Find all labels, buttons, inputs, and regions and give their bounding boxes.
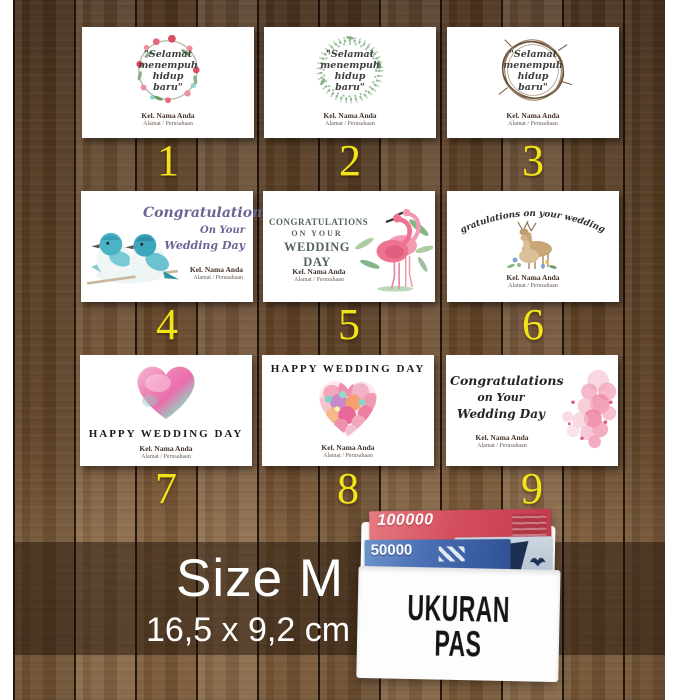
- sender-address: Alamat / Perusahaan: [190, 275, 243, 283]
- product-image: "Selamat menempuh hidup baru" Kel. Nama …: [0, 0, 700, 700]
- quote-line: hidup: [153, 71, 184, 82]
- card-number-2: 2: [264, 139, 436, 183]
- card-design-5: CONGRATULATIONS ON YOUR WEDDING DAY Kel.…: [263, 191, 435, 302]
- sender-name: Kel. Nama Anda: [190, 265, 243, 275]
- card-design-7: HAPPY WEDDING DAY Kel. Nama Anda Alamat …: [80, 355, 252, 466]
- quote-line: hidup: [335, 71, 366, 82]
- card-number-3: 3: [447, 139, 619, 183]
- quote-line: menempuh: [138, 60, 198, 71]
- card-design-6: Congratulations on your wedding day Kel.…: [447, 191, 619, 302]
- quote-line: baru": [335, 82, 365, 93]
- title-line: CONGRATULATIONS: [269, 217, 365, 227]
- sender-block: Kel. Nama Anda Alamat / Perusahaan: [190, 265, 243, 283]
- title-line: WEDDING DAY: [269, 240, 365, 270]
- sender-address: Alamat / Perusahaan: [271, 277, 367, 285]
- card-number-7: 7: [80, 467, 252, 511]
- banknote-value: 100000: [377, 511, 434, 530]
- floral-heart-illustration: [306, 376, 390, 440]
- card-title: Congratulations On Your Wedding Day: [143, 205, 245, 252]
- sender-block: Kel. Nama Anda Alamat / Perusahaan: [271, 267, 367, 285]
- card-design-2: "Selamat menempuh hidup baru" Kel. Nama …: [264, 27, 436, 138]
- card-title: HAPPY WEDDING DAY: [262, 363, 434, 375]
- sender-block: Kel. Nama Anda Alamat / Perusahaan: [80, 444, 252, 462]
- card-number-5: 5: [263, 303, 435, 347]
- card-design-1: "Selamat menempuh hidup baru" Kel. Nama …: [82, 27, 254, 138]
- card-title: Congratulations on Your Wedding Day: [450, 373, 552, 421]
- quote-line: menempuh: [503, 60, 563, 71]
- sender-name: Kel. Nama Anda: [264, 111, 436, 121]
- title-line: on Your: [450, 391, 552, 404]
- title-line: Congratulations: [450, 373, 552, 388]
- quote-line: "Selamat: [326, 49, 374, 60]
- sender-block: Kel. Nama Anda Alamat / Perusahaan: [447, 111, 619, 129]
- fit-size-label: UKURAN PAS: [365, 590, 552, 663]
- card-quote: "Selamat menempuh hidup baru": [447, 41, 619, 101]
- money-envelope: 100000 50000 UKURAN PAS: [356, 504, 562, 688]
- quote-line: baru": [518, 82, 548, 93]
- watercolor-heart-illustration: [128, 361, 204, 425]
- quote-line: hidup: [518, 71, 549, 82]
- card-title: HAPPY WEDDING DAY: [80, 428, 252, 440]
- card-number-6: 6: [447, 303, 619, 347]
- sender-block: Kel. Nama Anda Alamat / Perusahaan: [262, 443, 434, 461]
- card-quote: "Selamat menempuh hidup baru": [264, 41, 436, 101]
- card-design-3: "Selamat menempuh hidup baru" Kel. Nama …: [447, 27, 619, 138]
- title-line: Congratulations: [143, 205, 245, 221]
- size-dimensions: 16,5 x 9,2 cm: [98, 611, 398, 650]
- fit-label-line: PAS: [365, 625, 552, 664]
- card-number-1: 1: [82, 139, 254, 183]
- title-line: On Your: [143, 225, 245, 236]
- sender-address: Alamat / Perusahaan: [447, 283, 619, 291]
- sender-address: Alamat / Perusahaan: [452, 443, 552, 451]
- garuda-emblem-icon: [528, 550, 548, 570]
- sender-name: Kel. Nama Anda: [447, 273, 619, 283]
- sender-block: Kel. Nama Anda Alamat / Perusahaan: [447, 273, 619, 291]
- sender-name: Kel. Nama Anda: [80, 444, 252, 454]
- card-design-9: Congratulations on Your Wedding Day Kel.…: [446, 355, 618, 466]
- card-number-4: 4: [81, 303, 253, 347]
- quote-line: "Selamat: [509, 49, 557, 60]
- title-line: ON YOUR: [269, 229, 365, 238]
- card-design-4: Congratulations On Your Wedding Day Kel.…: [81, 191, 253, 302]
- sender-name: Kel. Nama Anda: [262, 443, 434, 453]
- deer-couple-illustration: [493, 219, 573, 271]
- card-quote: "Selamat menempuh hidup baru": [82, 41, 254, 101]
- sender-address: Alamat / Perusahaan: [262, 453, 434, 461]
- sender-name: Kel. Nama Anda: [271, 267, 367, 277]
- sender-name: Kel. Nama Anda: [447, 111, 619, 121]
- quote-line: baru": [153, 82, 183, 93]
- title-line: Wedding Day: [450, 407, 552, 421]
- card-title: CONGRATULATIONS ON YOUR WEDDING DAY: [269, 217, 365, 270]
- card-number-9: 9: [446, 467, 618, 511]
- sender-block: Kel. Nama Anda Alamat / Perusahaan: [264, 111, 436, 129]
- quote-line: menempuh: [320, 60, 380, 71]
- banknote-pattern: [439, 546, 465, 561]
- sender-name: Kel. Nama Anda: [452, 433, 552, 443]
- sender-address: Alamat / Perusahaan: [80, 454, 252, 462]
- sender-address: Alamat / Perusahaan: [264, 121, 436, 129]
- sender-block: Kel. Nama Anda Alamat / Perusahaan: [82, 111, 254, 129]
- envelope-front-pocket: UKURAN PAS: [356, 566, 560, 682]
- title-line: Wedding Day: [143, 239, 245, 252]
- quote-line: "Selamat: [144, 49, 192, 60]
- sender-block: Kel. Nama Anda Alamat / Perusahaan: [452, 433, 552, 451]
- sender-address: Alamat / Perusahaan: [447, 121, 619, 129]
- sender-address: Alamat / Perusahaan: [82, 121, 254, 129]
- sender-name: Kel. Nama Anda: [82, 111, 254, 121]
- banknote-value: 50000: [371, 542, 413, 559]
- card-design-8: HAPPY WEDDING DAY Kel. Nama Anda: [262, 355, 434, 466]
